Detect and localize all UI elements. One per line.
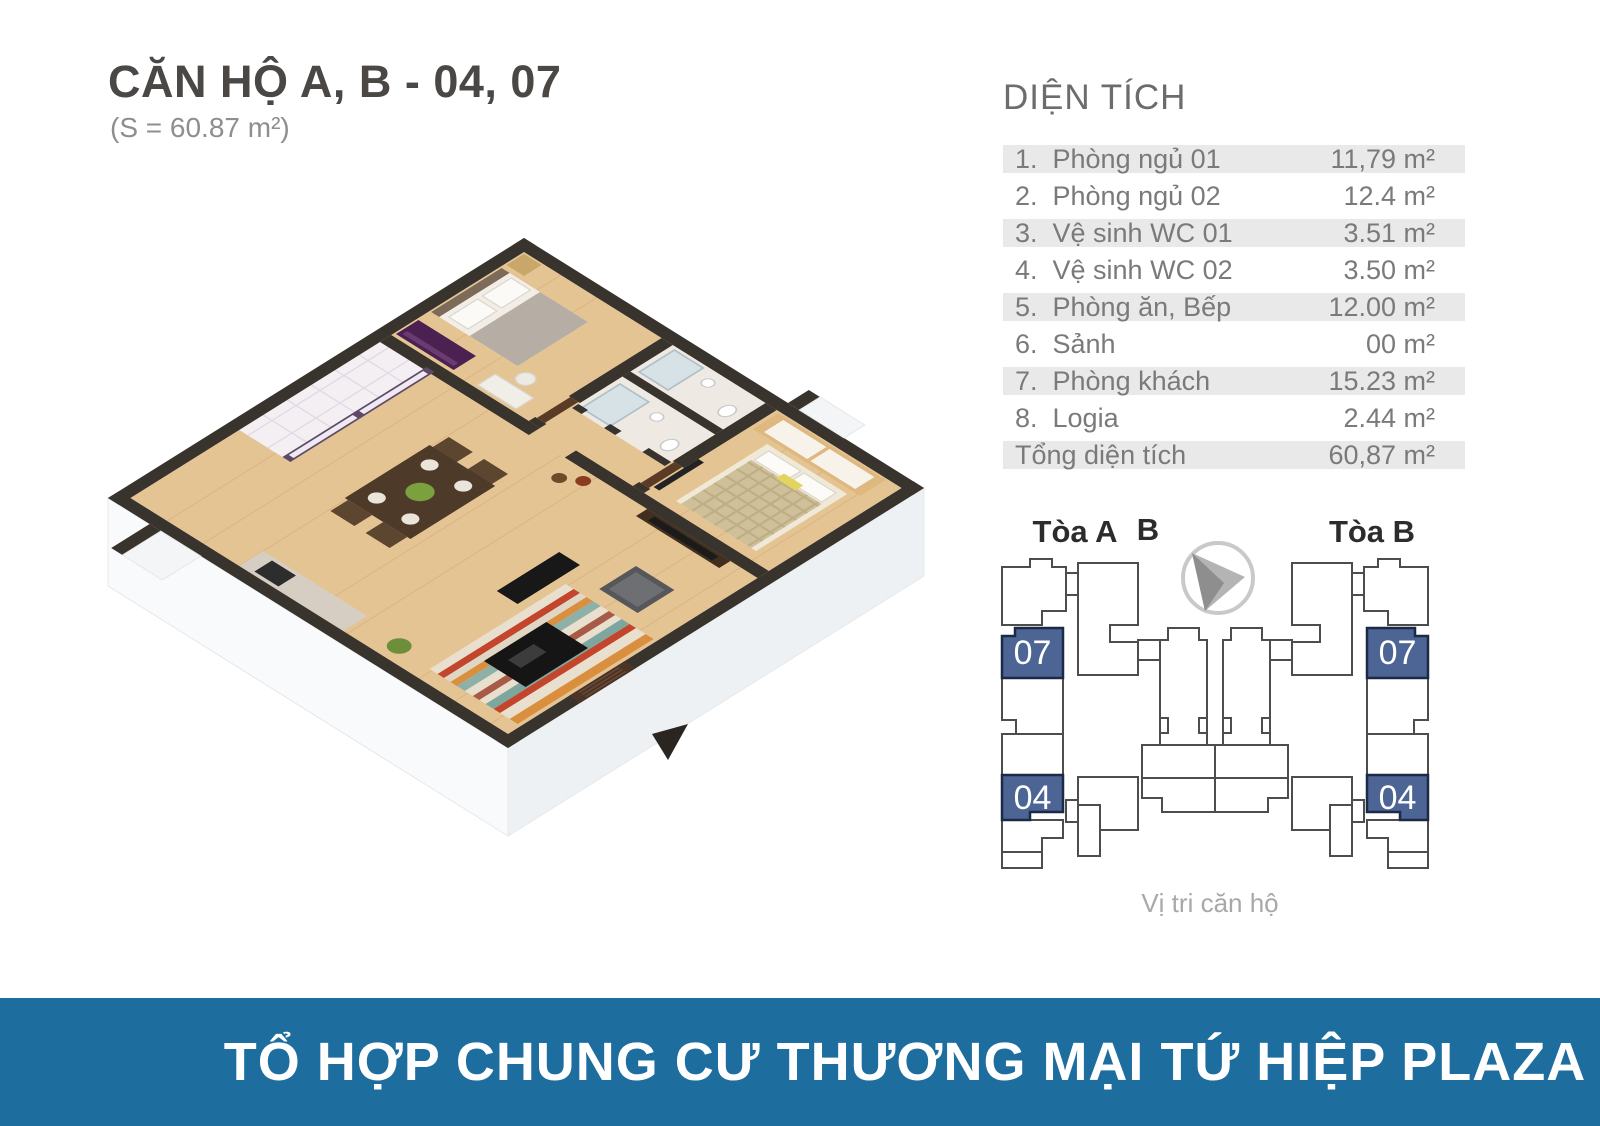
area-label: 7. Phòng khách xyxy=(1015,367,1210,395)
table-row: 2. Phòng ngủ 0212.4 m² xyxy=(1003,182,1465,210)
floor-plan-rooms xyxy=(70,225,945,772)
area-table-title: DIỆN TÍCH xyxy=(1003,78,1186,118)
area-label: 5. Phòng ăn, Bếp xyxy=(1015,293,1231,321)
area-label: 3. Vệ sinh WC 01 xyxy=(1015,219,1233,247)
area-value: 2.44 m² xyxy=(1343,404,1435,432)
table-row: 4. Vệ sinh WC 023.50 m² xyxy=(1003,256,1465,284)
table-row: 6. Sảnh00 m² xyxy=(1003,330,1465,358)
brochure-page: CĂN HỘ A, B - 04, 07 (S = 60.87 m²) xyxy=(0,0,1600,1126)
area-value: 15.23 m² xyxy=(1328,367,1435,395)
area-label: 1. Phòng ngủ 01 xyxy=(1015,145,1221,173)
locator-caption: Vị tri căn hộ xyxy=(1060,888,1360,919)
page-subtitle: (S = 60.87 m²) xyxy=(110,112,290,144)
central-core-outline xyxy=(1142,745,1288,812)
area-value: 11,79 m² xyxy=(1330,145,1435,173)
area-table: 1. Phòng ngủ 0111,79 m² 2. Phòng ngủ 021… xyxy=(1003,145,1465,478)
table-row: 3. Vệ sinh WC 013.51 m² xyxy=(1003,219,1465,247)
table-row-total: Tổng diện tích60,87 m² xyxy=(1003,441,1465,469)
unit-locator-diagram xyxy=(960,500,1450,890)
table-row: 5. Phòng ăn, Bếp12.00 m² xyxy=(1003,293,1465,321)
area-value: 3.51 m² xyxy=(1343,219,1435,247)
area-value: 3.50 m² xyxy=(1343,256,1435,284)
area-label: 4. Vệ sinh WC 02 xyxy=(1015,256,1233,284)
area-value: 12.00 m² xyxy=(1328,293,1435,321)
footer-banner: TỔ HỢP CHUNG CƯ THƯƠNG MẠI TỨ HIỆP PLAZA xyxy=(0,998,1600,1126)
unit-04-label: 04 xyxy=(1367,775,1428,821)
area-value: 12.4 m² xyxy=(1343,182,1435,210)
area-label: Tổng diện tích xyxy=(1015,441,1186,469)
unit-07-label: 07 xyxy=(1002,630,1063,676)
table-row: 8. Logia2.44 m² xyxy=(1003,404,1465,432)
compass-icon xyxy=(1183,543,1253,613)
area-label: 2. Phòng ngủ 02 xyxy=(1015,182,1221,210)
unit-07-label: 07 xyxy=(1367,630,1428,676)
table-row: 1. Phòng ngủ 0111,79 m² xyxy=(1003,145,1465,173)
unit-04-label: 04 xyxy=(1002,775,1063,821)
floor-plan-3d xyxy=(20,150,970,970)
tower-b-outline xyxy=(1223,559,1428,868)
tower-a-outline xyxy=(1002,559,1207,868)
table-row: 7. Phòng khách15.23 m² xyxy=(1003,367,1465,395)
page-title: CĂN HỘ A, B - 04, 07 xyxy=(108,56,561,108)
area-value: 00 m² xyxy=(1366,330,1435,358)
area-value: 60,87 m² xyxy=(1328,441,1435,469)
project-name: TỔ HỢP CHUNG CƯ THƯƠNG MẠI TỨ HIỆP PLAZA xyxy=(224,1031,1587,1093)
area-label: 8. Logia xyxy=(1015,404,1119,432)
area-label: 6. Sảnh xyxy=(1015,330,1116,358)
